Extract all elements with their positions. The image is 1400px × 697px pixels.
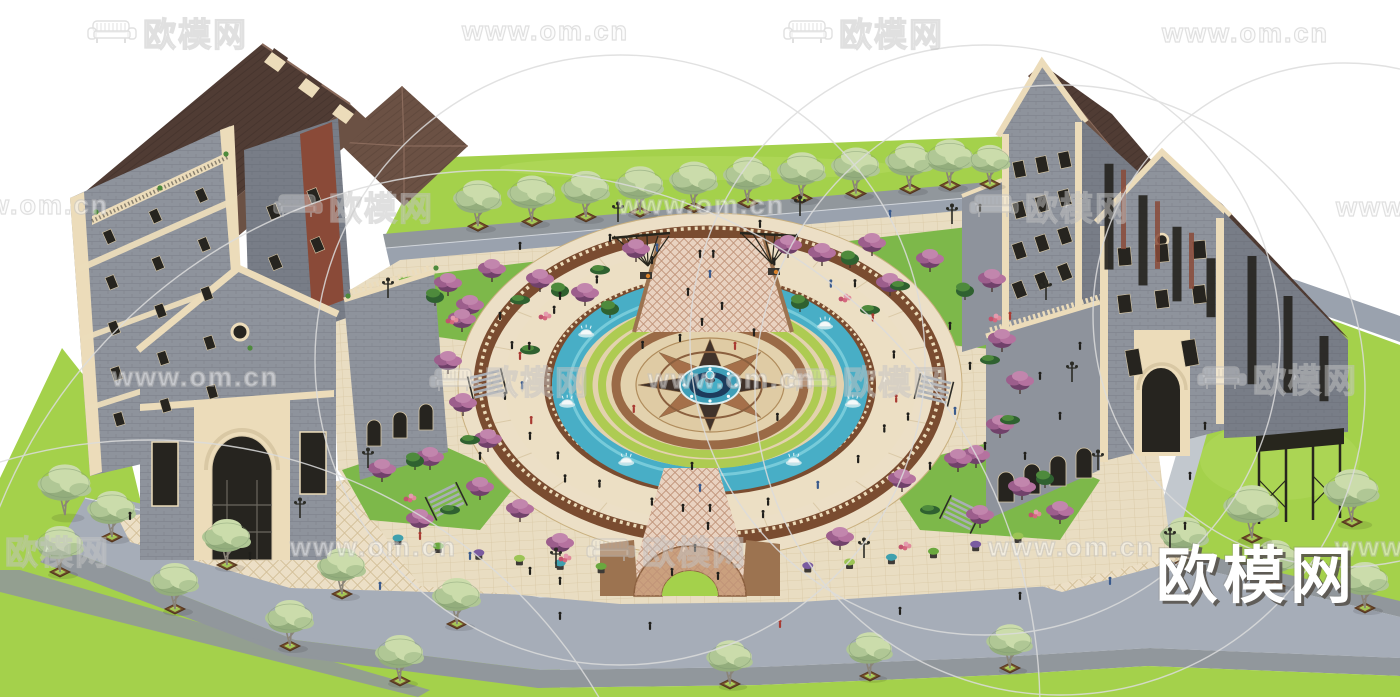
watermark-arc [0, 440, 670, 697]
watermark-arc [1093, 63, 1400, 567]
watermark-arcs [0, 0, 1400, 697]
watermark-arc [315, 55, 925, 665]
render-image: 欧模网www.om.cn 欧模网www.om.cnwww.om.cn 欧模网ww… [0, 0, 1400, 697]
watermark-arc [690, 45, 1280, 635]
watermark-arc [755, 85, 1365, 695]
watermark-arc [0, 170, 1040, 697]
